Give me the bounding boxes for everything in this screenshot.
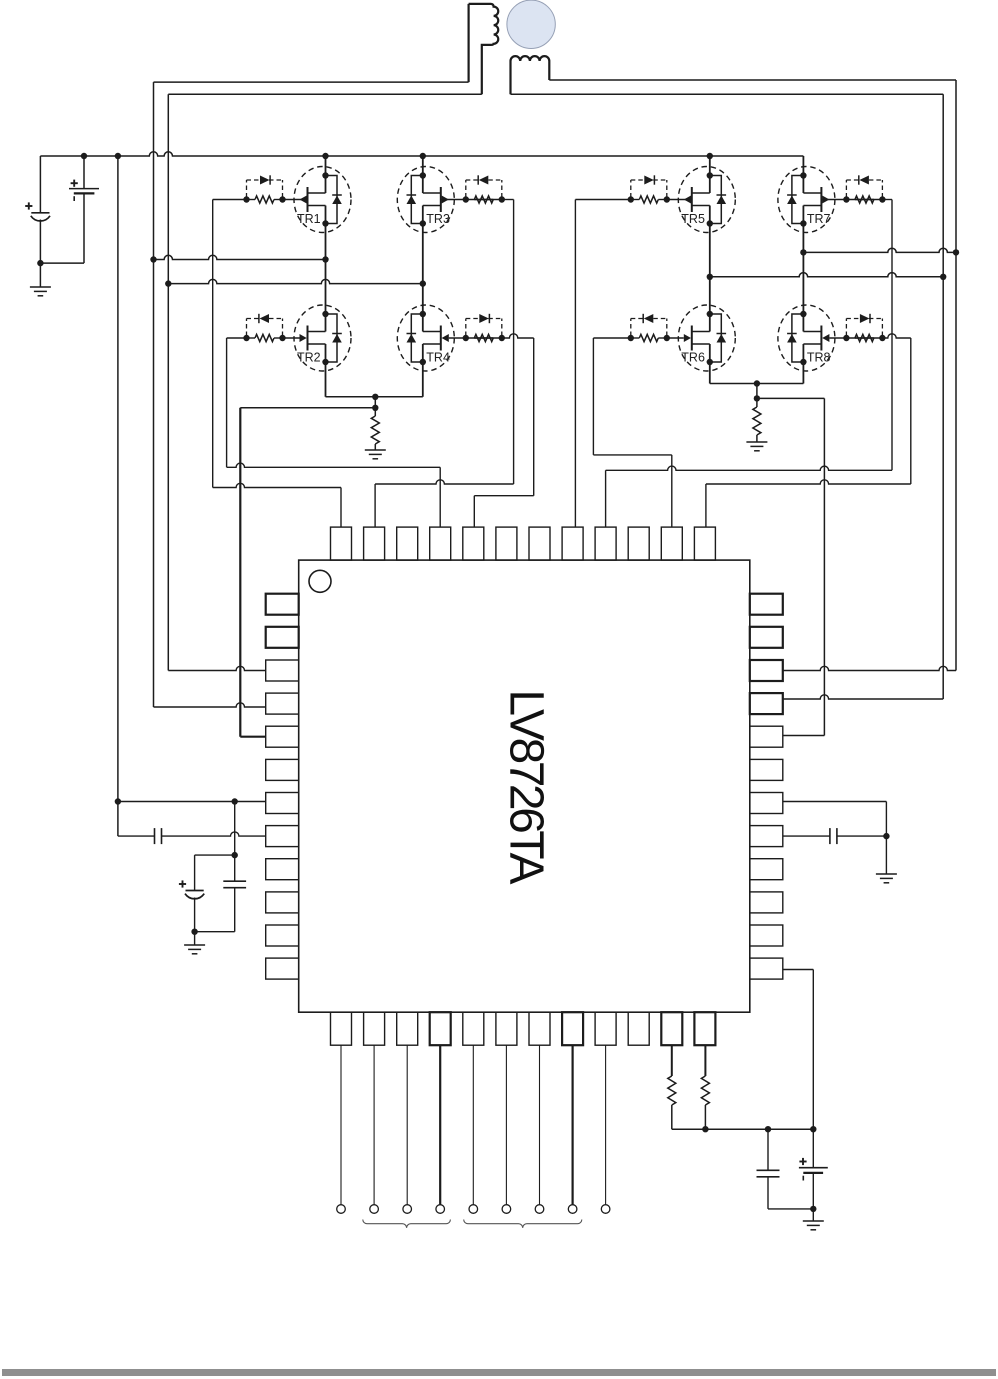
svg-text:TR5: TR5 xyxy=(681,212,705,226)
svg-text:TR4: TR4 xyxy=(426,351,450,365)
svg-text:TR3: TR3 xyxy=(426,212,450,226)
svg-text:LV8726TA: LV8726TA xyxy=(500,689,553,884)
svg-text:TR2: TR2 xyxy=(297,351,321,365)
svg-text:TR6: TR6 xyxy=(681,351,705,365)
svg-text:TR1: TR1 xyxy=(297,212,321,226)
svg-text:TR8: TR8 xyxy=(807,351,831,365)
svg-text:TR7: TR7 xyxy=(807,212,831,226)
